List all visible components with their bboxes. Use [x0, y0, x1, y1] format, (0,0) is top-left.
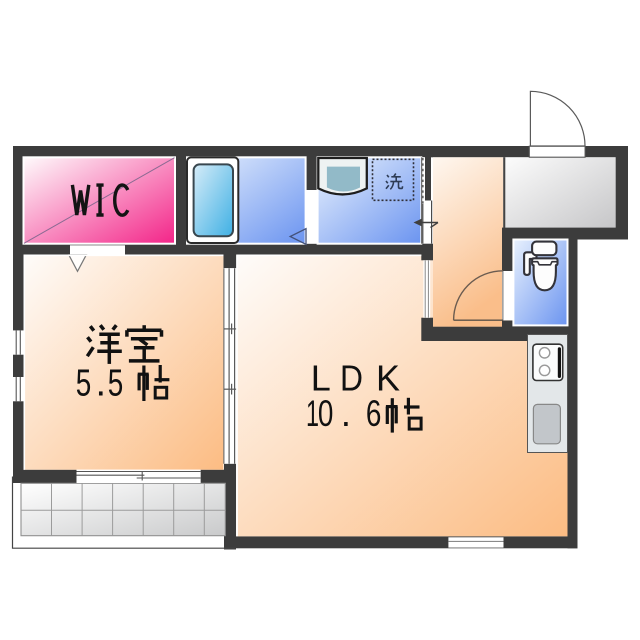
svg-text:0: 0 [318, 393, 334, 434]
svg-text:.: . [341, 393, 351, 434]
svg-text:6: 6 [366, 393, 382, 434]
svg-text:5: 5 [108, 362, 124, 404]
svg-text:5: 5 [76, 362, 92, 404]
svg-text:.: . [96, 362, 107, 404]
